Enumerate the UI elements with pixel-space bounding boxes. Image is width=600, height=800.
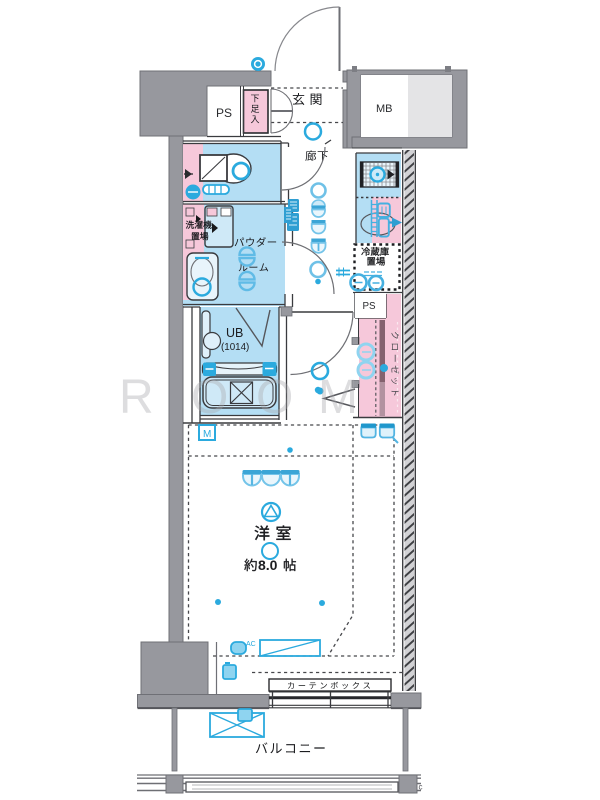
svg-text:R: R [119,371,154,424]
svg-text:8.0: 8.0 [258,557,278,573]
svg-text:O: O [256,371,293,424]
svg-text:AC: AC [246,641,256,648]
svg-text:PS: PS [216,106,232,120]
svg-text:c: c [419,783,423,792]
svg-text:(1014): (1014) [221,342,249,353]
svg-text:UB: UB [226,326,243,340]
svg-text:M: M [203,429,211,440]
svg-text:MB: MB [376,103,393,115]
svg-text:PS: PS [363,301,377,312]
svg-text:M: M [318,371,358,424]
svg-text:O: O [191,371,228,424]
